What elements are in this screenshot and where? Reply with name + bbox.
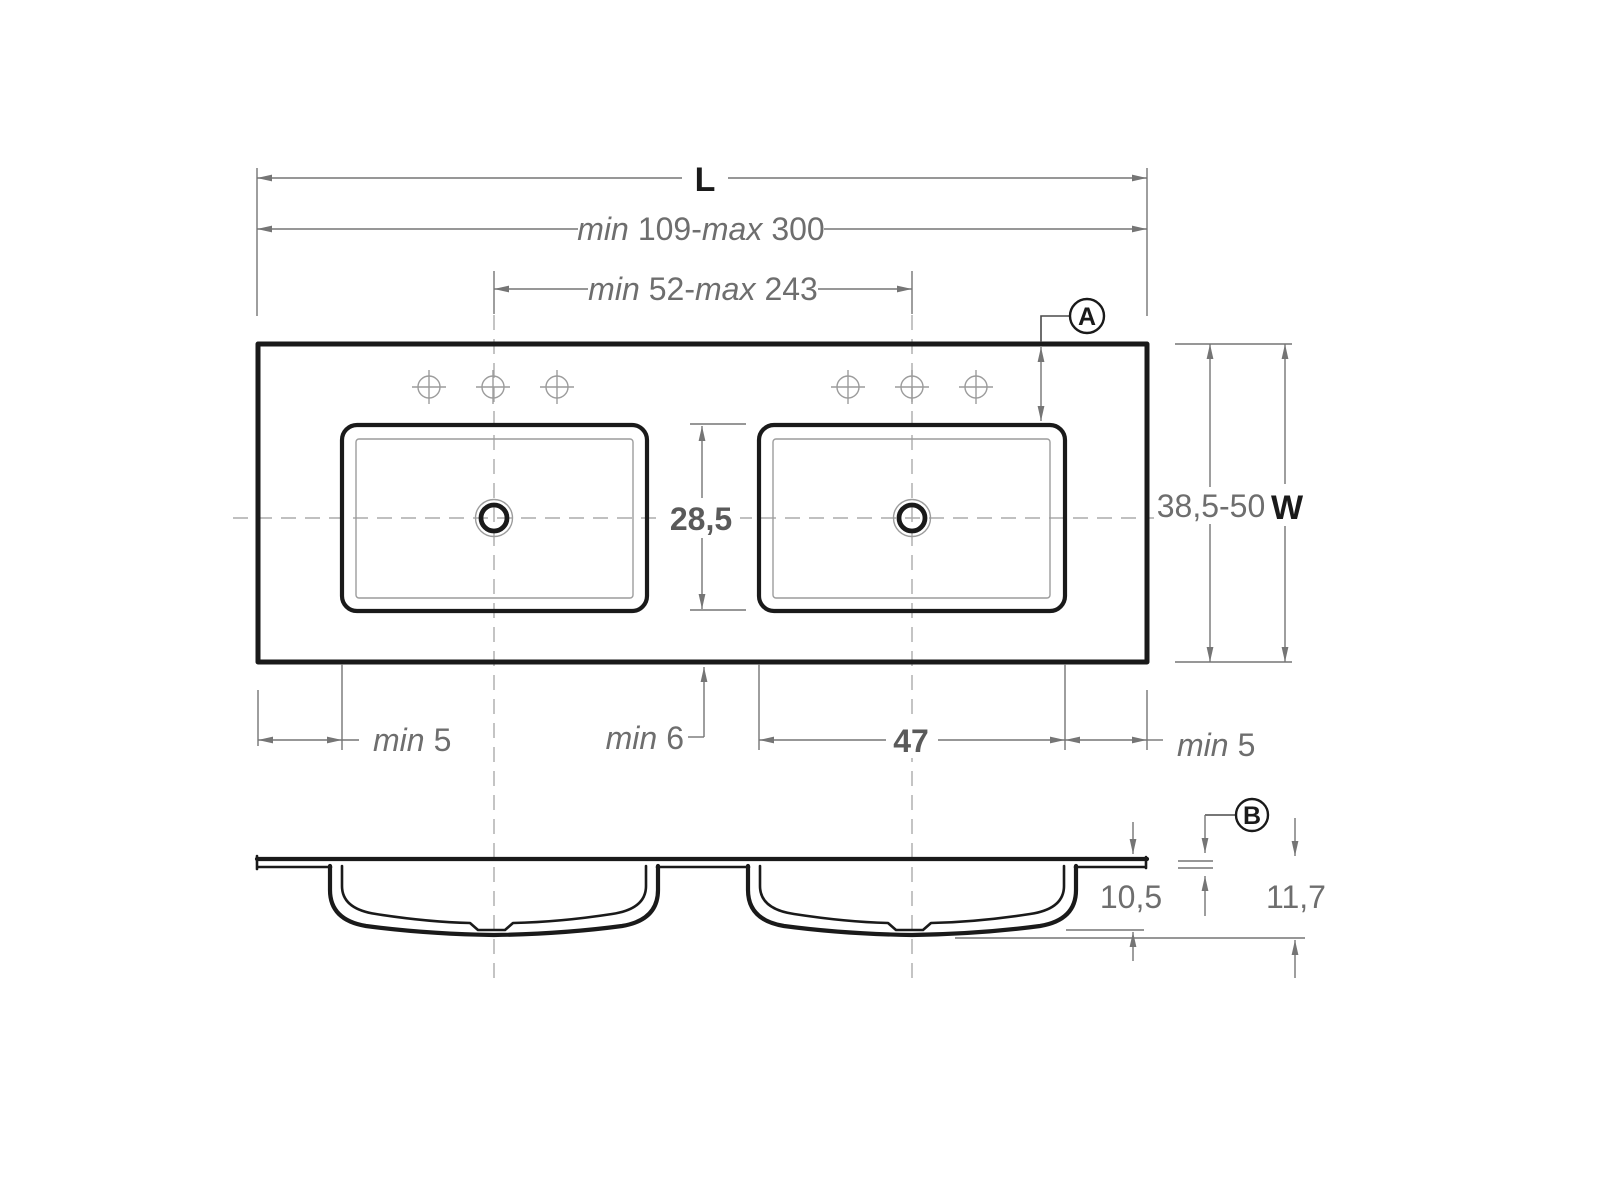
faucet-hole-icon [540,370,574,404]
basin-inner-length-label: 47 [893,723,929,759]
faucet-holes [412,370,993,404]
length-range-label: min109-max300 [577,211,824,247]
right-margin-label: min5 [1177,727,1255,763]
faucet-hole-icon [959,370,993,404]
faucet-hole-icon [412,370,446,404]
detail-a-leader [1041,316,1069,342]
centerlines [233,315,1157,980]
basin-inner-width-label: 28,5 [670,501,732,537]
technical-drawing-page: L min109-max300 min52-max243 38,5-50 W 2… [0,0,1597,1198]
detail-a-callout: A [1070,299,1104,333]
centers-range-label: min52-max243 [588,271,818,307]
faucet-hole-icon [895,370,929,404]
total-depth-label: 11,7 [1266,879,1326,915]
overall-length-label: L [695,161,716,199]
front-margin-label: min6 [606,720,684,756]
dimension-labels: L min109-max300 min52-max243 38,5-50 W 2… [373,161,1326,915]
overall-width-label: W [1271,489,1304,527]
section-view [257,856,1147,935]
faucet-hole-icon [831,370,865,404]
section-profile [257,856,1147,935]
width-range-label: 38,5-50 [1157,488,1266,524]
faucet-hole-icon [476,370,510,404]
detail-b-label: B [1243,802,1261,830]
washbasin-drawing: L min109-max300 min52-max243 38,5-50 W 2… [0,0,1597,1198]
text-masks [578,158,1308,758]
detail-b-callout: B [1236,799,1268,831]
left-margin-label: min5 [373,722,451,758]
inner-depth-label: 10,5 [1100,879,1162,915]
detail-a-label: A [1078,303,1096,331]
